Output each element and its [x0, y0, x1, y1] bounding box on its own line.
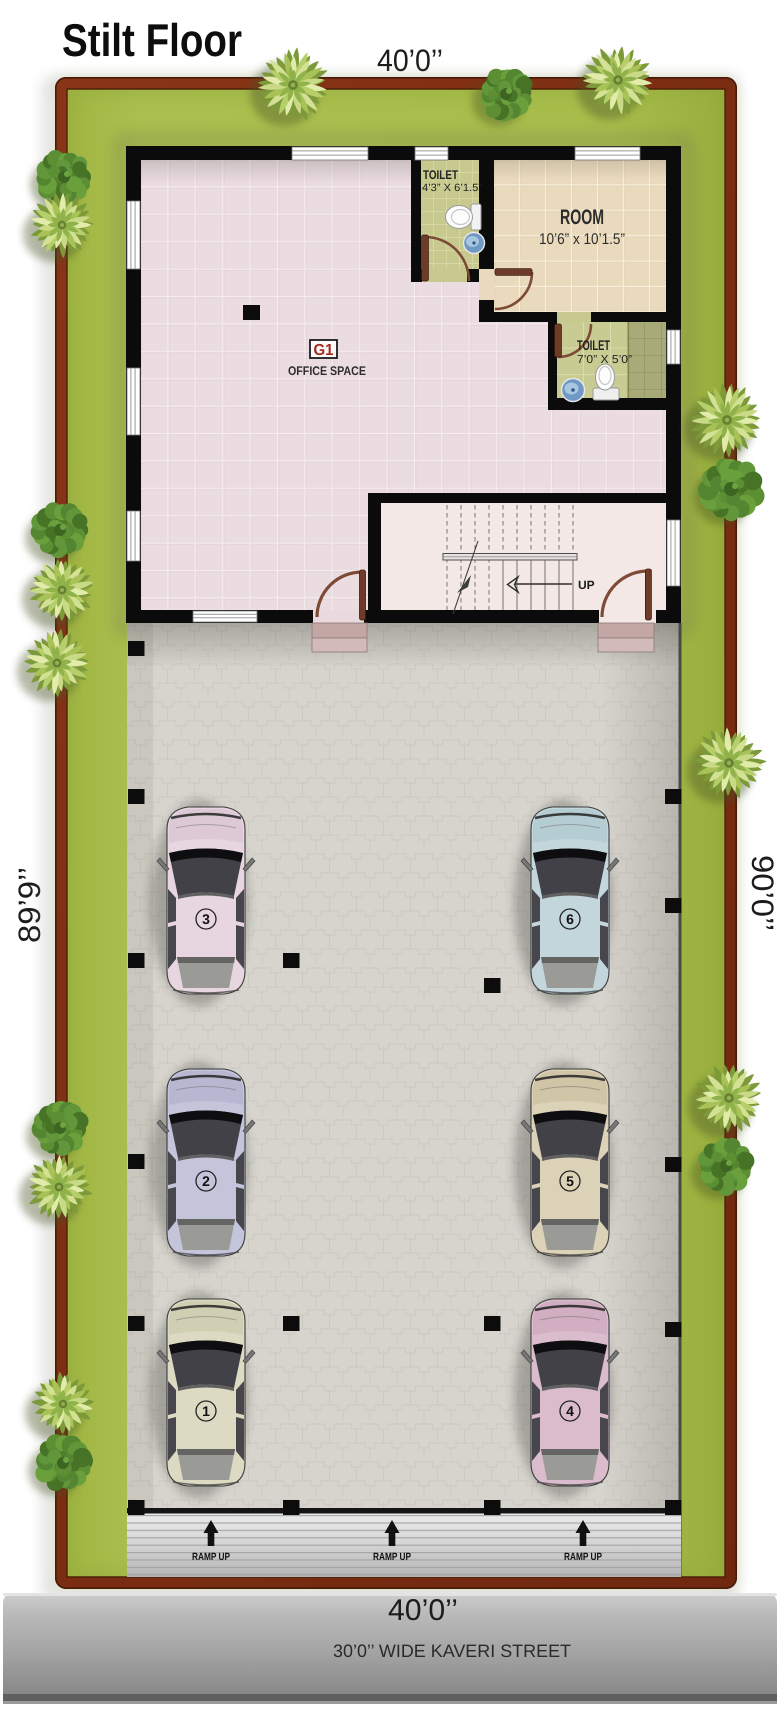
svg-text:ROOM: ROOM [560, 206, 604, 229]
svg-text:4’3” X 6’1.5”: 4’3” X 6’1.5” [422, 182, 483, 194]
svg-text:90’0’’: 90’0’’ [745, 855, 780, 931]
svg-text:UP: UP [578, 578, 595, 592]
svg-text:OFFICE SPACE: OFFICE SPACE [288, 364, 366, 378]
svg-text:40’0’’: 40’0’’ [388, 1594, 458, 1627]
svg-text:2: 2 [202, 1173, 210, 1189]
svg-text:6: 6 [566, 911, 574, 927]
svg-text:4: 4 [566, 1403, 574, 1419]
svg-text:TOILET: TOILET [423, 168, 458, 182]
svg-text:89’9’’: 89’9’’ [12, 867, 47, 943]
svg-text:5: 5 [566, 1173, 574, 1189]
svg-text:1: 1 [202, 1403, 210, 1419]
svg-text:Stilt Floor: Stilt Floor [62, 14, 242, 66]
svg-text:3: 3 [202, 911, 210, 927]
svg-text:TOILET: TOILET [577, 337, 610, 353]
svg-text:G1: G1 [314, 342, 334, 359]
svg-text:RAMP UP: RAMP UP [564, 1551, 602, 1563]
svg-text:40’0’’: 40’0’’ [377, 43, 443, 78]
svg-text:10’6” x 10’1.5”: 10’6” x 10’1.5” [539, 231, 625, 248]
svg-text:RAMP UP: RAMP UP [192, 1551, 230, 1563]
svg-text:7’0” X 5’0”: 7’0” X 5’0” [577, 354, 632, 366]
svg-text:RAMP UP: RAMP UP [373, 1551, 411, 1563]
svg-text:30’0’’ WIDE KAVERI STREET: 30’0’’ WIDE KAVERI STREET [333, 1641, 571, 1661]
